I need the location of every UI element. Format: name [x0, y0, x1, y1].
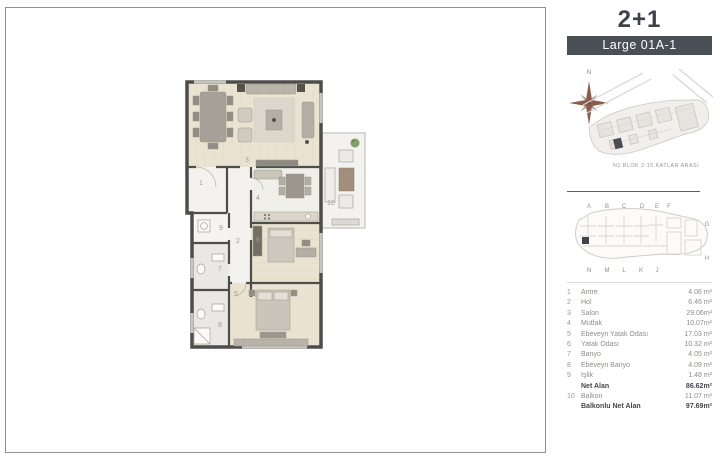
- room-label-ebeveyn-yatak: 5: [234, 291, 238, 298]
- area-row: 10 Balkon 11.07 m²: [567, 392, 712, 402]
- svg-text:L: L: [622, 268, 626, 274]
- area-row: 9 Işlik 1.48 m²: [567, 371, 712, 381]
- area-row: 5 Ebeveyn Yatak Odası 17.03 m²: [567, 330, 712, 340]
- tv-console: [256, 160, 298, 166]
- site-plan-block: N: [567, 63, 712, 181]
- room-label-ebeveyn-banyo: 8: [218, 322, 222, 329]
- room-label-mutfak: 4: [256, 195, 260, 202]
- area-row: 6 Yatak Odası 10.32 m²: [567, 340, 712, 350]
- separator: [567, 282, 712, 283]
- side-table: [237, 84, 245, 92]
- room-label-yatak: 6: [256, 237, 260, 244]
- room-label-hol: 2: [236, 238, 240, 245]
- plant-icon: [351, 139, 360, 148]
- armchair: [238, 128, 252, 142]
- balcony: [321, 133, 365, 228]
- room-area-list: 1 Antre 4.06 m² 2 Hol 6.46 m² 3 Salon 29…: [567, 288, 712, 413]
- wardrobe: [234, 339, 308, 346]
- area-row-balcony-total: Balkonlu Net Alan 97.69m²: [567, 402, 712, 412]
- info-panel: 2+1 Large 01A-1 N: [547, 0, 720, 460]
- svg-text:B: B: [605, 204, 609, 210]
- sink: [212, 254, 224, 261]
- area-row: 7 Banyo 4.05 m²: [567, 350, 712, 360]
- chair: [302, 240, 310, 246]
- svg-text:K: K: [639, 268, 643, 274]
- svg-text:G: G: [705, 222, 710, 228]
- svg-text:N: N: [587, 268, 591, 274]
- svg-text:C: C: [622, 204, 627, 210]
- area-row: 4 Mutfak 10.07m²: [567, 319, 712, 329]
- area-row: 1 Antre 4.06 m²: [567, 288, 712, 298]
- desk: [296, 248, 316, 257]
- dining-table: [200, 92, 226, 142]
- sink: [212, 304, 224, 311]
- washing-machine: [198, 220, 210, 232]
- chaise-lounge: [302, 102, 314, 138]
- room-label-banyo: 7: [218, 266, 222, 273]
- site-plan-caption: N1 BLOK 2-15.KATLAR ARASI: [597, 163, 715, 169]
- site-plan-sketch: [581, 67, 715, 163]
- svg-text:A: A: [587, 204, 591, 210]
- pillow: [274, 292, 288, 300]
- toilet: [197, 264, 205, 274]
- nightstand: [291, 290, 297, 296]
- floor-plan: 3 1 4 10 9 2 6 7 5 8: [182, 78, 374, 368]
- toilet: [197, 309, 205, 319]
- pillow: [270, 230, 292, 237]
- separator: [567, 191, 700, 192]
- kitchen-bench: [254, 170, 282, 179]
- area-row: 3 Salon 29.06m²: [567, 309, 712, 319]
- kitchen-table: [286, 174, 304, 198]
- unit-type-title: 2+1: [567, 6, 712, 34]
- floor-lamp: [305, 140, 309, 144]
- svg-text:H: H: [705, 256, 709, 262]
- area-row-net-total: Net Alan 86.62m²: [567, 382, 712, 392]
- room-label-salon: 3: [245, 157, 249, 164]
- area-row: 8 Ebeveyn Banyo 4.09 m²: [567, 361, 712, 371]
- room-label-antre: 1: [199, 180, 203, 187]
- svg-text:J: J: [656, 268, 659, 274]
- bench: [260, 332, 286, 338]
- room-label-balkon: 10: [327, 200, 335, 207]
- svg-text:F: F: [667, 204, 671, 210]
- floor-plan-card: 3 1 4 10 9 2 6 7 5 8: [5, 7, 546, 453]
- nightstand: [249, 290, 255, 296]
- key-plan: A B C D E F G H N M L K J: [567, 198, 717, 276]
- area-row: 2 Hol 6.46 m²: [567, 298, 712, 308]
- armchair: [238, 108, 252, 122]
- svg-text:D: D: [640, 204, 645, 210]
- svg-text:E: E: [655, 204, 659, 210]
- key-plan-highlight: [582, 237, 589, 244]
- sink: [305, 214, 310, 219]
- unit-variant-badge: Large 01A-1: [567, 36, 712, 55]
- room-label-islik: 9: [219, 225, 223, 232]
- svg-text:M: M: [605, 268, 610, 274]
- side-table: [297, 84, 305, 92]
- pillow: [258, 292, 272, 300]
